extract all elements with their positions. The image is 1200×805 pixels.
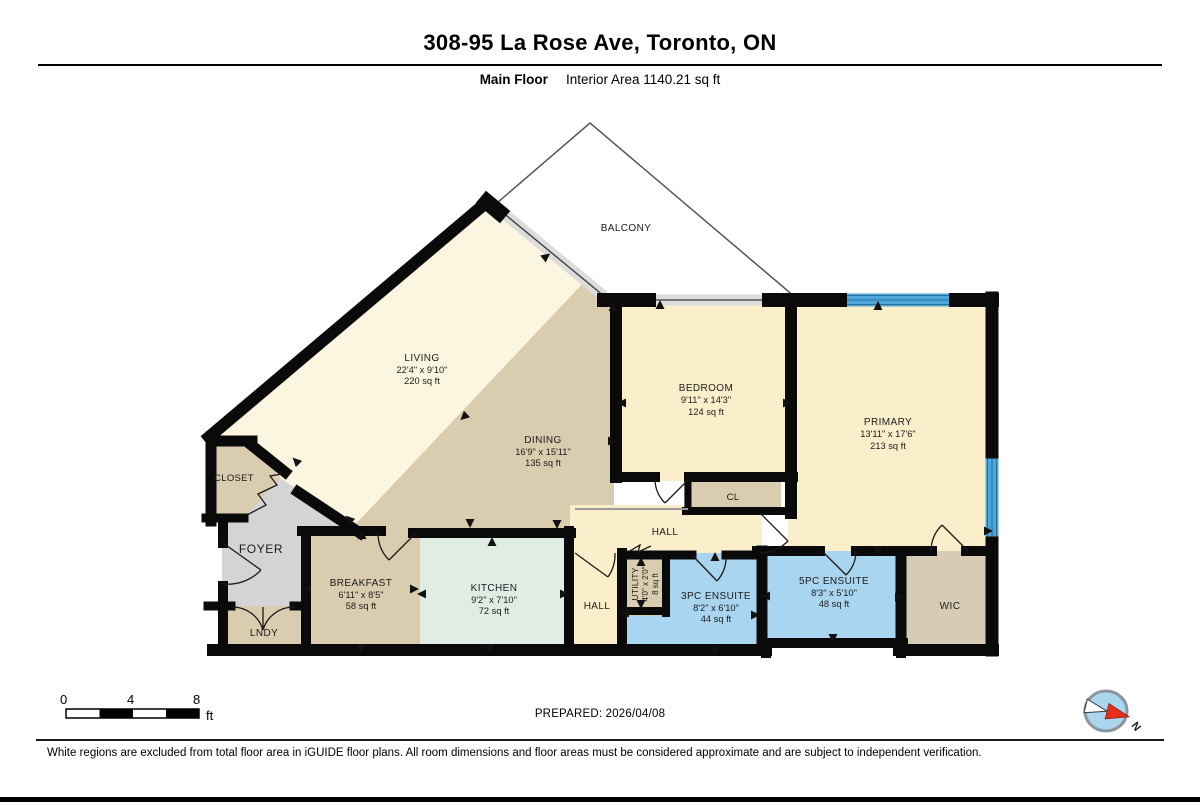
svg-text:72 sq ft: 72 sq ft (479, 606, 510, 616)
svg-text:22'4" x 9'10": 22'4" x 9'10" (397, 365, 448, 375)
svg-text:8'3" x 5'10": 8'3" x 5'10" (811, 588, 857, 598)
room-fills (206, 123, 997, 655)
hall-upper-label: HALL (652, 527, 679, 538)
svg-text:220 sq ft: 220 sq ft (404, 376, 440, 386)
floor-plan-page: 308-95 La Rose Ave, Toronto, ON Main Flo… (0, 0, 1200, 805)
svg-text:UTILITY: UTILITY (630, 567, 640, 600)
svg-text:3PC ENSUITE: 3PC ENSUITE (681, 591, 751, 602)
svg-text:48 sq ft: 48 sq ft (819, 599, 850, 609)
cl-label: CL (727, 492, 740, 503)
svg-text:8'2" x 6'10": 8'2" x 6'10" (693, 603, 739, 613)
svg-text:5PC ENSUITE: 5PC ENSUITE (799, 576, 869, 587)
bedroom-door (655, 479, 689, 503)
compass-n-label: N (1128, 720, 1142, 734)
closet-label: CLOSET (214, 473, 254, 484)
svg-text:135 sq ft: 135 sq ft (525, 458, 561, 468)
scale-tick-0: 0 (60, 692, 67, 707)
svg-text:44 sq ft: 44 sq ft (701, 614, 732, 624)
svg-text:8 sq ft: 8 sq ft (651, 572, 660, 595)
lndy-label: LNDY (250, 628, 278, 639)
foyer-label: FOYER (239, 542, 283, 556)
svg-text:PRIMARY: PRIMARY (864, 417, 912, 428)
svg-text:9'2" x 7'10": 9'2" x 7'10" (471, 595, 517, 605)
svg-text:LIVING: LIVING (404, 353, 439, 364)
svg-text:9'11" x 14'3": 9'11" x 14'3" (681, 395, 731, 405)
footer-divider (36, 739, 1164, 741)
wic-label: WIC (940, 601, 961, 612)
svg-text:4'0" x 2'0": 4'0" x 2'0" (641, 566, 650, 601)
svg-text:KITCHEN: KITCHEN (471, 583, 518, 594)
svg-text:BEDROOM: BEDROOM (679, 383, 733, 394)
prepared-date: PREPARED: 2026/04/08 (0, 708, 1200, 720)
svg-text:DINING: DINING (524, 435, 561, 446)
floor-plan-drawing: BALCONY LIVING 22'4" x 9'10" 220 sq ft D… (0, 0, 1200, 805)
scale-tick-8: 8 (193, 692, 200, 707)
page-bottom-border (0, 797, 1200, 802)
svg-text:13'11" x 17'6": 13'11" x 17'6" (860, 429, 915, 439)
balcony-label: BALCONY (601, 223, 652, 234)
svg-text:16'9" x 15'11": 16'9" x 15'11" (515, 447, 570, 457)
svg-text:BREAKFAST: BREAKFAST (330, 578, 393, 589)
svg-text:213 sq ft: 213 sq ft (870, 441, 906, 451)
svg-text:6'11" x 8'5": 6'11" x 8'5" (338, 590, 383, 600)
hall-lower-label: HALL (584, 601, 611, 612)
svg-text:58 sq ft: 58 sq ft (346, 601, 377, 611)
disclaimer-text: White regions are excluded from total fl… (47, 747, 1147, 759)
svg-text:124 sq ft: 124 sq ft (688, 407, 724, 417)
scale-tick-4: 4 (127, 692, 134, 707)
